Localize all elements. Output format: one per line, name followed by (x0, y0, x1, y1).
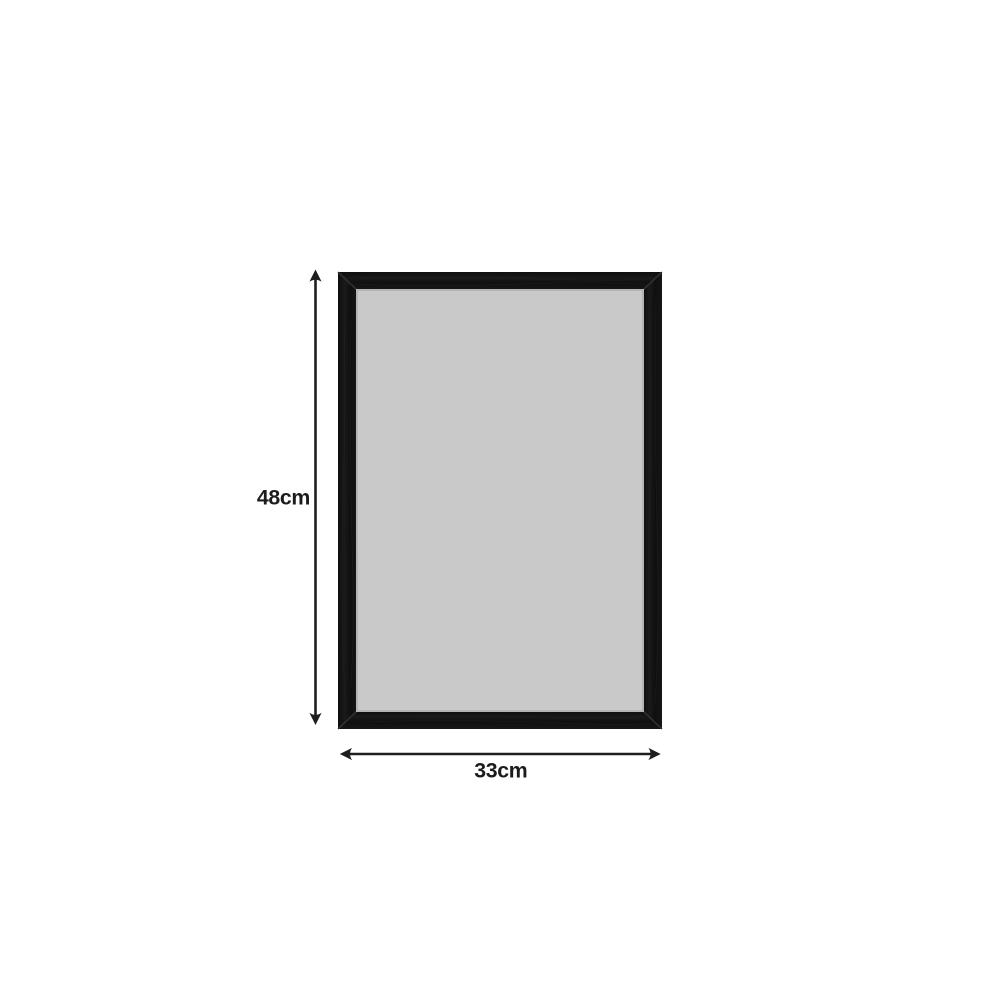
svg-text:33cm: 33cm (474, 758, 527, 782)
svg-text:48cm: 48cm (257, 486, 310, 510)
